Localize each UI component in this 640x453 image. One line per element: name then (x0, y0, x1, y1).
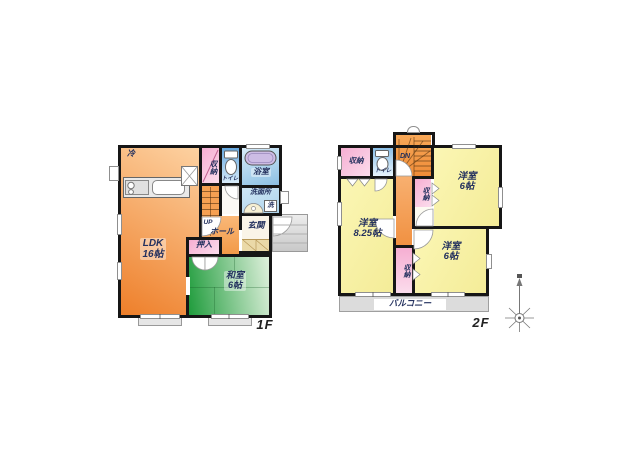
wall (393, 245, 415, 248)
wall (432, 132, 435, 148)
window (211, 314, 249, 319)
window (486, 254, 492, 269)
floor2-label: 2F (466, 316, 496, 330)
wall (412, 226, 502, 229)
up-label: UP (199, 219, 217, 226)
closet-1f-label: 収納 (204, 152, 217, 182)
toilet-1f-label: トイレ (220, 176, 240, 182)
floor1-label: 1F (250, 318, 280, 332)
balcony-label: バルコニー (374, 299, 446, 308)
window (280, 191, 289, 204)
window (109, 166, 119, 181)
western-room-8-25-label: 洋室8.25帖 (340, 219, 395, 240)
window (140, 314, 180, 319)
window (246, 144, 270, 149)
kitchen-cabinet (181, 166, 198, 186)
wall (338, 145, 502, 148)
wall (239, 251, 272, 254)
wall (219, 237, 222, 257)
closet-2f-mid-label: 収納 (417, 181, 429, 206)
door-opening (186, 277, 190, 295)
hall-2f (396, 176, 412, 248)
wall (412, 247, 415, 296)
wall (279, 145, 282, 216)
western-room-6-bottom-label: 洋室6帖 (425, 242, 477, 263)
oshiire-label: 押入 (190, 241, 218, 250)
wall (242, 185, 280, 188)
wall (412, 176, 434, 179)
western-room-6-top-label: 洋室6帖 (443, 172, 491, 193)
wall (239, 213, 282, 216)
wall (431, 148, 434, 179)
washer-label: 洗 (264, 202, 277, 209)
washroom-label: 洗面所 (242, 189, 279, 197)
wall (269, 216, 272, 318)
wall (370, 148, 373, 179)
window (355, 292, 391, 297)
corridor-1f (222, 186, 239, 214)
fixtures-overlay (0, 0, 640, 453)
toilet-2f-label: トイレ (372, 168, 394, 174)
window (452, 144, 476, 149)
entrance-porch (272, 214, 308, 252)
window (407, 126, 420, 133)
window (431, 292, 465, 297)
wall (199, 183, 242, 186)
wall (239, 216, 242, 230)
dn-label: DN (396, 153, 414, 161)
entrance-label: 玄関 (243, 221, 269, 230)
ldk-label: LDK16帖 (130, 238, 176, 260)
closet-2f-strip-label: 収納 (398, 255, 410, 287)
wall (393, 132, 396, 148)
window (117, 214, 122, 235)
bath-label: 浴室 (246, 168, 276, 177)
fridge-label: 冷 (123, 150, 139, 159)
closet-2f-topleft-label: 収納 (342, 157, 370, 165)
window (498, 187, 503, 208)
entrance-tile (242, 239, 269, 251)
window (117, 262, 122, 280)
floorplan-image: 冷 収納 トイレ 浴室 洗面所 洗 UP ホール 玄関 押入 LDK16帖 和室… (0, 0, 640, 453)
kitchen-stove (125, 180, 149, 195)
washitsu-label: 和室6帖 (212, 271, 258, 291)
tatami-line (214, 287, 215, 315)
wall (186, 254, 272, 257)
hall-label: ホール (206, 228, 238, 237)
compass-icon (505, 274, 534, 332)
wall (412, 176, 415, 229)
wall (338, 176, 396, 179)
